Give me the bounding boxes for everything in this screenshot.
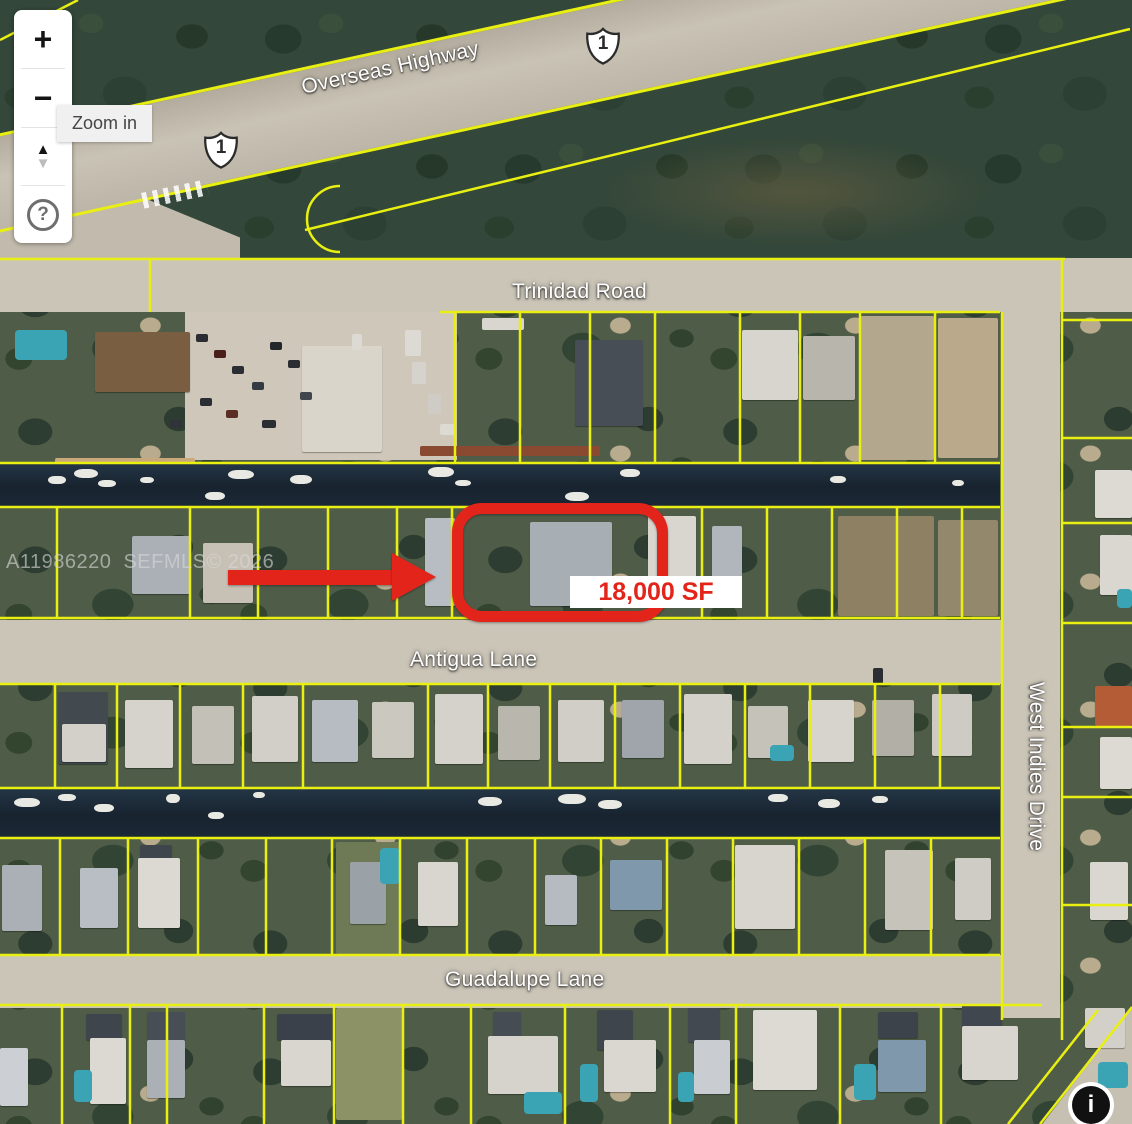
road-label-antigua: Antigua Lane [410, 648, 537, 672]
highlight-arrow-icon [392, 553, 436, 601]
arrow-down-icon: ▼ [36, 157, 51, 171]
route-number: 1 [584, 33, 622, 55]
road-label-trinidad: Trinidad Road [512, 280, 647, 304]
info-icon: i [1072, 1086, 1110, 1124]
route-1-shield-icon: 1 [584, 26, 622, 66]
route-1-shield-icon: 1 [202, 130, 240, 170]
zoom-in-tooltip: Zoom in [57, 105, 152, 142]
help-button[interactable]: ? [14, 186, 72, 243]
route-number: 1 [202, 137, 240, 159]
parcel-boundary-curve [307, 186, 340, 252]
zoom-in-button[interactable]: + [14, 10, 72, 68]
road-label-west-indies: West Indies Drive [1024, 682, 1048, 851]
lot-size-label: 18,000 SF [570, 576, 742, 608]
map-canvas[interactable]: Overseas Highway Trinidad Road Antigua L… [0, 0, 1132, 1124]
question-mark-icon: ? [27, 199, 59, 231]
road-label-guadalupe: Guadalupe Lane [445, 968, 605, 992]
info-button[interactable]: i [1068, 1082, 1114, 1124]
highlight-arrow-shaft [228, 570, 394, 585]
